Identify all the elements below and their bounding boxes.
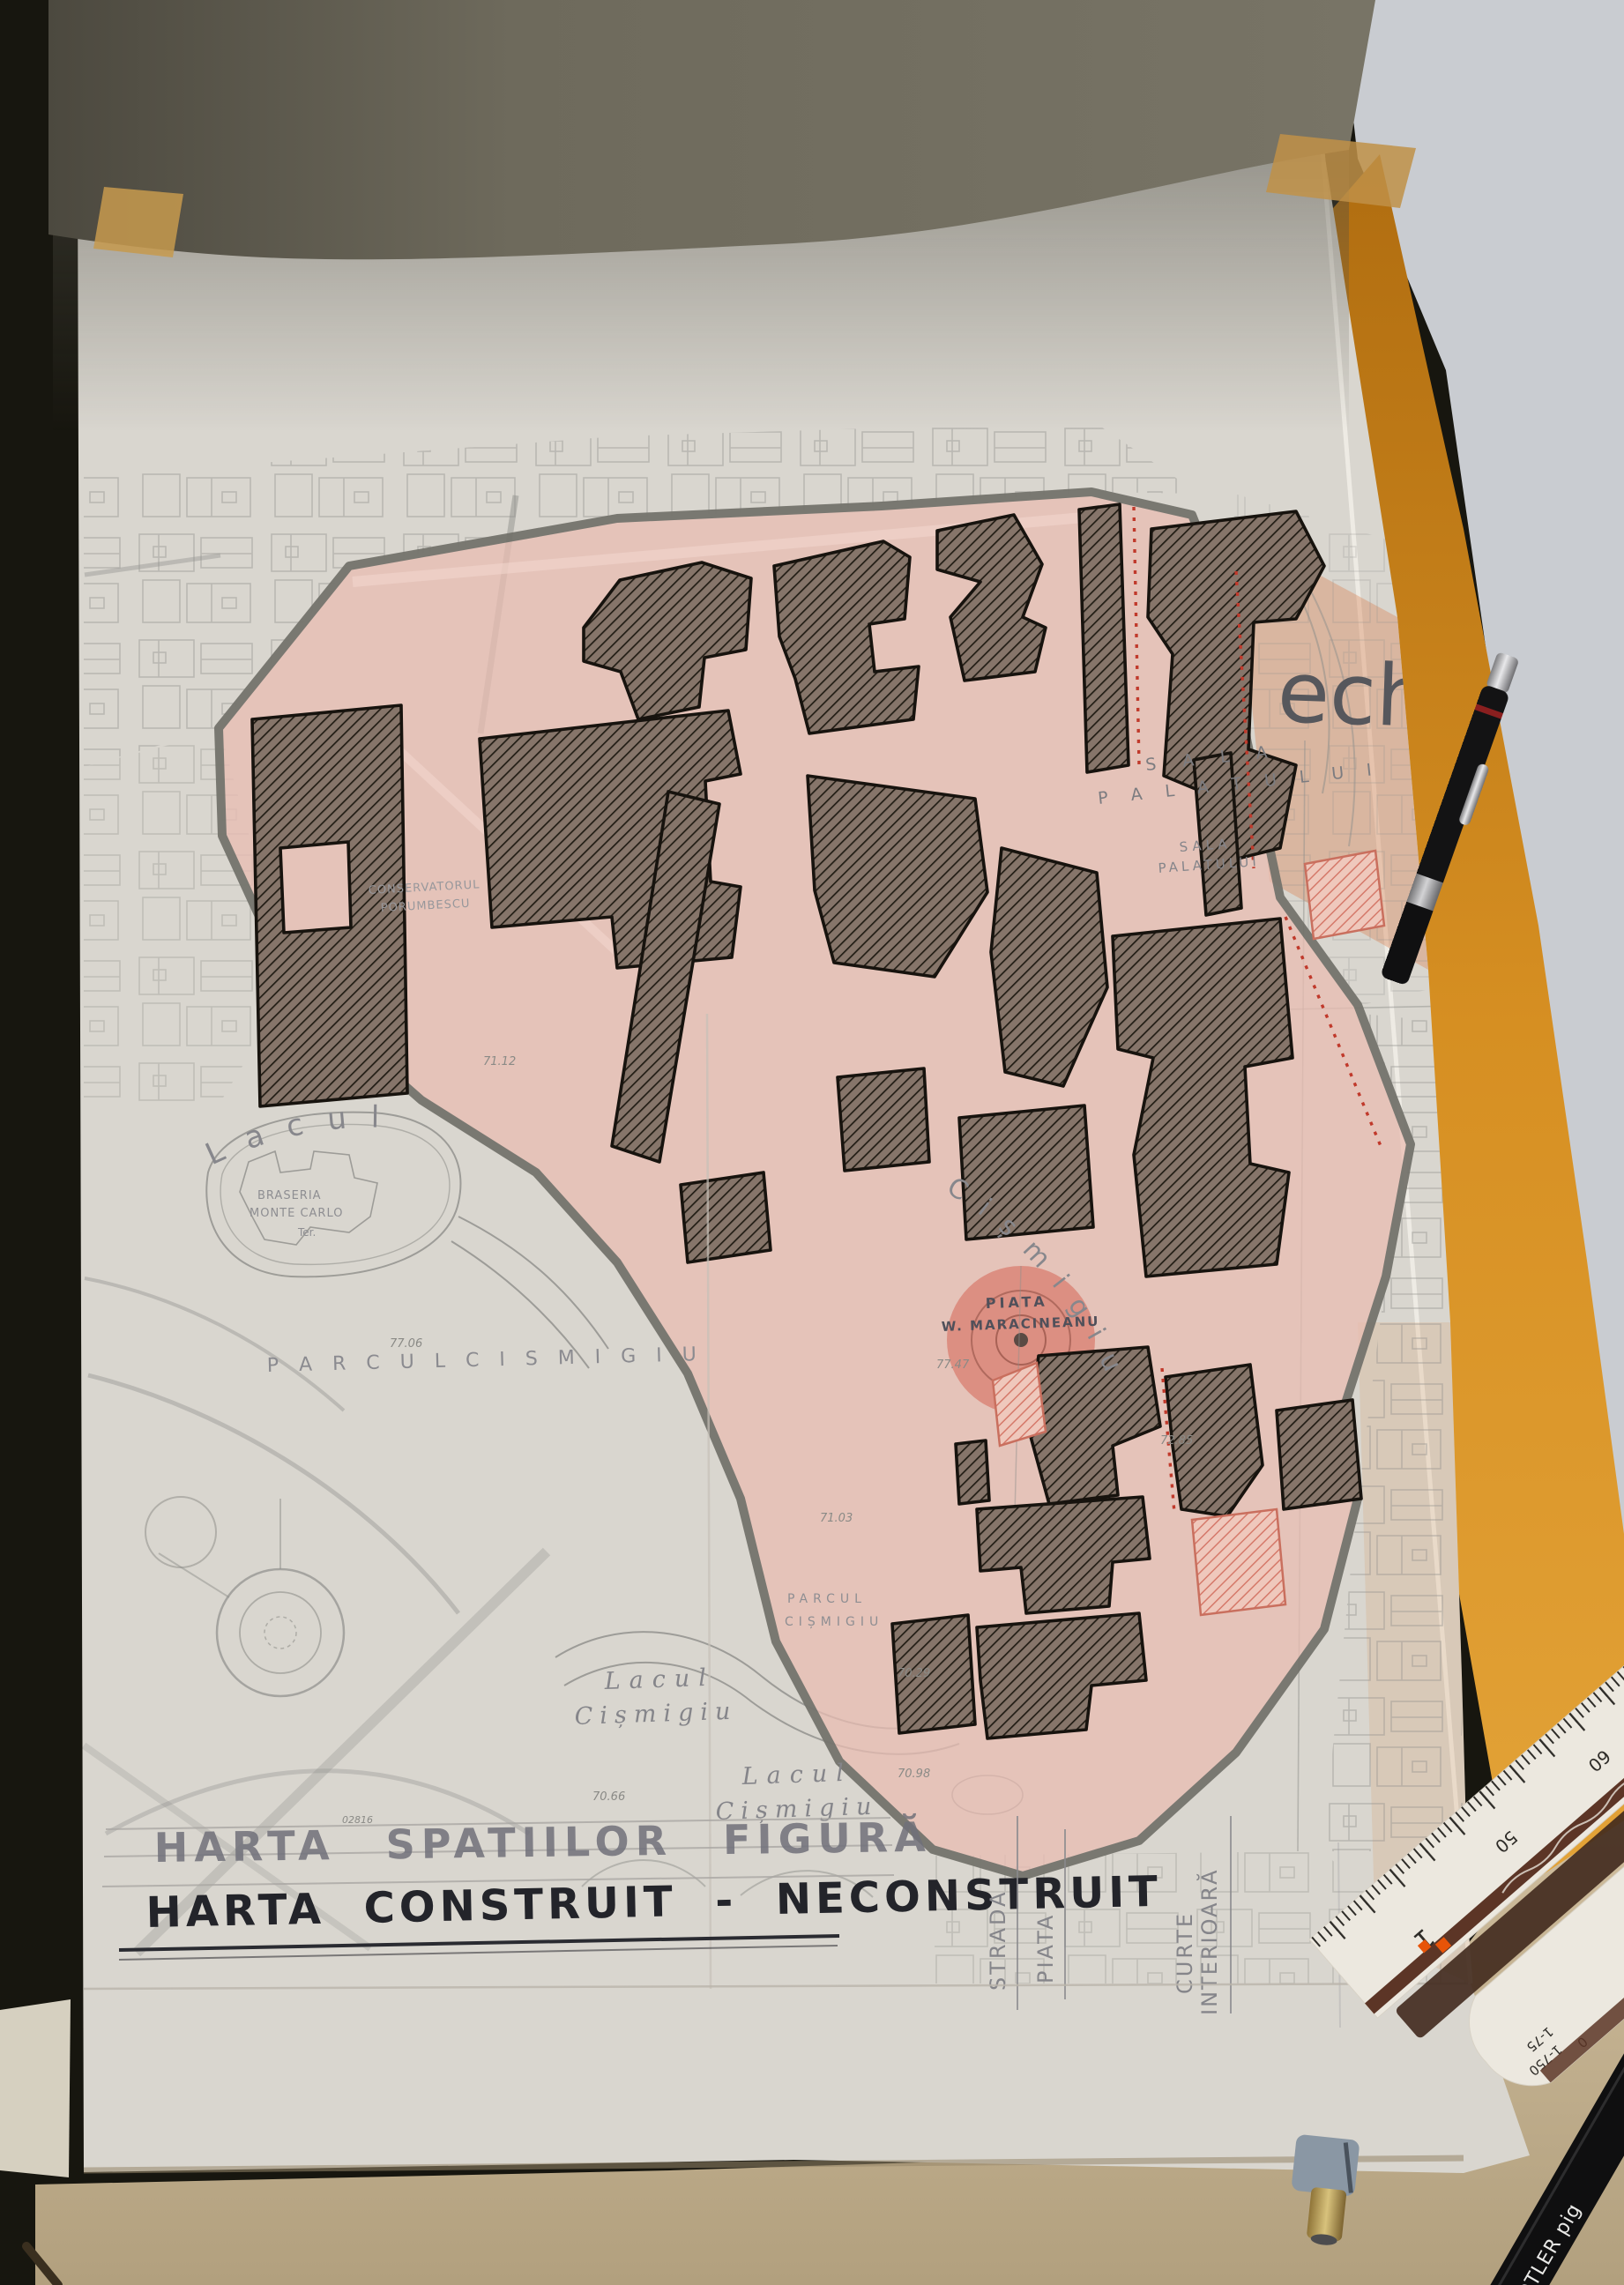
label-parcul-small-2: CIȘMIGIU [785,1615,883,1629]
building-block [1277,1400,1361,1509]
scene: L a c u l C i ș m i g i u BRASERIA MONTE… [0,0,1624,2285]
elevation-value: 70.66 [592,1790,625,1804]
elevation-value: 72.85 [1160,1434,1193,1448]
elevation-value: 71.12 [483,1055,516,1068]
label-lacul-cismigiu-b1: Lacul [741,1760,853,1790]
label-parcul-small-1: PARCUL [787,1592,867,1606]
cap-metal-barrel [1307,2187,1347,2242]
label-island-braseria: BRASERIA [257,1189,322,1202]
plaza-center-dot [1014,1333,1028,1347]
photo-of-map-on-desk: L a c u l C i ș m i g i u BRASERIA MONTE… [0,0,1624,2285]
page-edge-bottom-left [0,1999,71,2177]
masking-tape-left [93,187,183,257]
label-lacul-cismigiu-a1: Lacul [603,1664,715,1695]
elevation-value: 77.06 [390,1337,422,1351]
elevation-value: 70.29 [898,1667,930,1680]
label-island-montecarlo: MONTE CARLO [250,1207,343,1220]
elevation-value: 71.03 [820,1512,853,1525]
legend-label-piata: PIATA [1033,1913,1058,1984]
building-block [1079,504,1129,772]
elevation-value: 77.47 [936,1358,970,1372]
red-hatched-block [1192,1509,1285,1615]
legend-label-interioara: INTERIOARĂ [1196,1868,1222,2015]
label-island-ter: Ter. [297,1226,316,1239]
legend-label-curte: CURTE [1173,1911,1197,1994]
building-block [956,1440,989,1504]
red-hatched-block [1305,851,1384,939]
label-piata: PIATA [985,1293,1047,1312]
building-block [681,1172,771,1262]
label-lacul-cismigiu-a2: Cișmigiu [574,1698,738,1730]
building-block [838,1068,929,1171]
elevation-value: 70.98 [898,1768,930,1781]
legend-label-strada: STRADA [986,1890,1010,1991]
